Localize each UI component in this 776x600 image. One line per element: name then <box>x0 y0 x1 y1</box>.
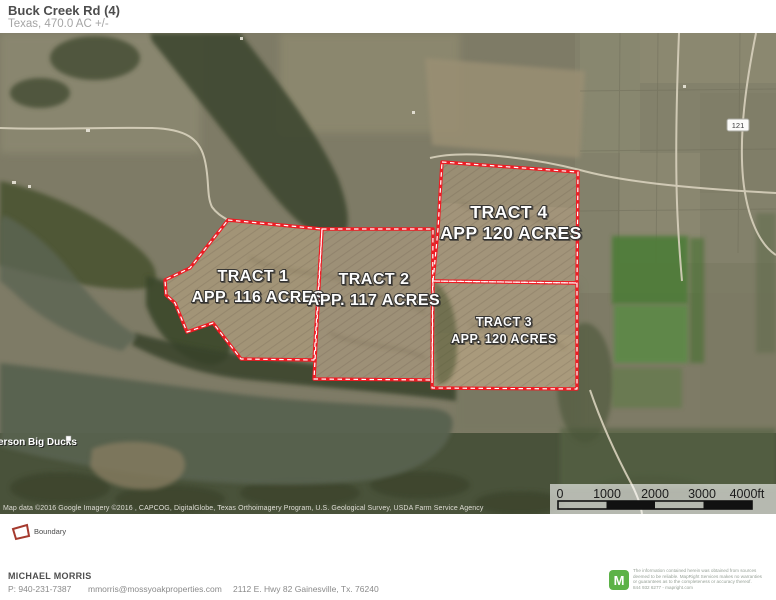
tract-4-name-label: TRACT 4 <box>470 202 547 222</box>
footer: MICHAEL MORRIS P: 940-231-7387 mmorris@m… <box>0 560 776 600</box>
scale-tick-2000: 2000 <box>641 487 669 501</box>
scale-tick-0: 0 <box>557 487 564 501</box>
tract-1-name-label: TRACT 1 <box>217 268 288 285</box>
map-scale-bar: 0 1000 2000 3000 4000ft <box>550 484 776 514</box>
page-subtitle: Texas, 470.0 AC +/- <box>8 18 109 30</box>
agent-name: MICHAEL MORRIS <box>8 571 92 581</box>
place-marker-icon <box>66 436 71 441</box>
tract-3-acres-label: APP. 120 ACRES <box>451 332 557 346</box>
disclaimer-text: The information contained herein was obt… <box>633 568 773 590</box>
tract-2-name-label: TRACT 2 <box>338 271 409 288</box>
map-attribution: Map data ©2016 Google Imagery ©2016 , CA… <box>3 504 484 512</box>
scale-tick-4000ft: 4000ft <box>730 487 765 501</box>
disclaimer-line: 844 932 6277 - mapright.com <box>633 585 773 591</box>
boundary-legend-label: Boundary <box>34 527 66 536</box>
scale-tick-1000: 1000 <box>593 487 621 501</box>
agent-email[interactable]: mmorris@mossyoakproperties.com <box>88 584 222 594</box>
scale-tick-3000: 3000 <box>688 487 716 501</box>
highway-121-shield: 121 <box>727 119 749 131</box>
agent-phone: P: 940-231-7387 <box>8 584 71 594</box>
satellite-map[interactable]: TRACT 1 APP. 116 ACRES TRACT 2 APP. 117 … <box>0 33 776 514</box>
legend: Boundary <box>0 514 776 560</box>
tract-1-acres-label: APP. 116 ACRES <box>192 289 324 306</box>
place-label: erson Big Ducks <box>0 437 77 448</box>
tract-2-acres-label: APP. 117 ACRES <box>308 292 440 309</box>
agent-address: 2112 E. Hwy 82 Gainesville, Tx. 76240 <box>233 584 379 594</box>
tract-4-acres-label: APP 120 ACRES <box>440 223 582 243</box>
page-title: Buck Creek Rd (4) <box>8 3 120 18</box>
boundary-polygon-icon <box>9 522 33 542</box>
header: Buck Creek Rd (4) Texas, 470.0 AC +/- <box>0 0 776 33</box>
disclaimer-line: The information contained herein was obt… <box>633 568 773 574</box>
tract-3-name-label: TRACT 3 <box>476 315 532 329</box>
mapright-logo: M <box>609 570 629 590</box>
svg-text:121: 121 <box>732 121 745 130</box>
